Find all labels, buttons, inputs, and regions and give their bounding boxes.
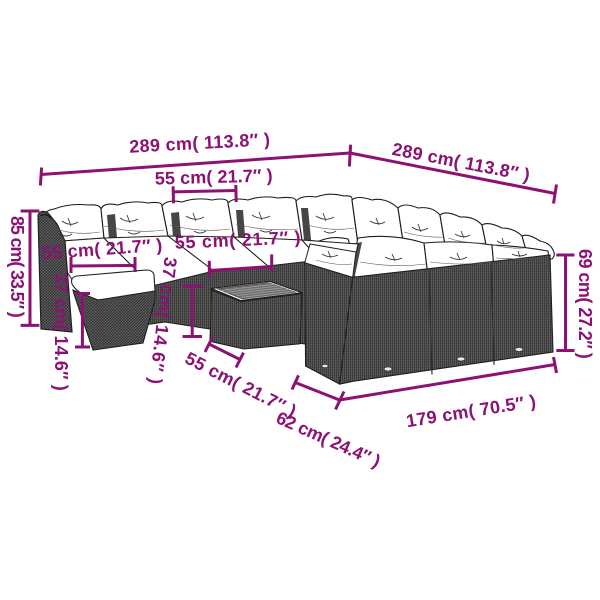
svg-text:85 cm( 33.5″ ): 85 cm( 33.5″ ) — [7, 216, 27, 318]
svg-text:37 cm( 14.6″ ): 37 cm( 14.6″ ) — [51, 273, 71, 391]
svg-text:69 cm( 27.2″ ): 69 cm( 27.2″ ) — [575, 249, 595, 359]
svg-text:55 cm( 21.7″ ): 55 cm( 21.7″ ) — [155, 165, 274, 188]
